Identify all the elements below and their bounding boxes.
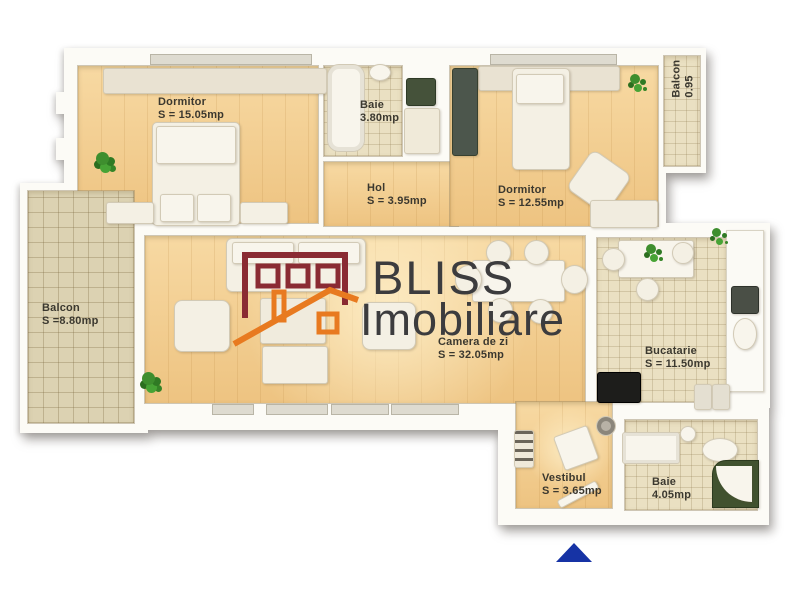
dresser xyxy=(590,200,658,228)
room-area: S = 11.50mp xyxy=(645,358,711,371)
bed-duvet xyxy=(156,126,236,164)
room-name: Dormitor xyxy=(158,96,224,109)
tall-wardrobe xyxy=(452,68,478,156)
room-area: S = 12.55mp xyxy=(498,197,564,210)
room-label-kitchen: Bucatarie S = 11.50mp xyxy=(645,345,711,370)
plant-icon xyxy=(142,372,155,385)
bathroom-counter xyxy=(622,432,680,464)
room-area: S = 3.65mp xyxy=(542,485,602,498)
window-top-2 xyxy=(490,54,617,65)
room-area: 4.05mp xyxy=(652,489,691,502)
pillow xyxy=(516,74,564,104)
window-sill-left-1 xyxy=(56,92,66,114)
nightstand xyxy=(106,202,154,224)
toilet xyxy=(702,438,738,462)
kitchen-chair xyxy=(672,242,694,264)
kitchen-chair xyxy=(602,248,625,271)
room-label-bathroom-2: Baie 4.05mp xyxy=(652,476,691,501)
ceiling-lamp xyxy=(596,416,616,436)
room-name: Baie xyxy=(652,476,691,489)
room-name: Balcon xyxy=(670,60,683,98)
kitchen-appliance xyxy=(731,286,759,314)
room-area: S =8.80mp xyxy=(42,315,99,328)
appliance xyxy=(712,384,730,410)
room-label-vestibule: Vestibul S = 3.65mp xyxy=(542,472,602,497)
toilet xyxy=(369,64,391,81)
room-label-bedroom-1: Dormitor S = 15.05mp xyxy=(158,96,224,121)
window-sill-left-2 xyxy=(56,138,66,160)
floorplan-canvas: Dormitor S = 15.05mp Baie 3.80mp Hol S =… xyxy=(0,0,800,600)
window-living-2 xyxy=(266,404,328,415)
room-name: Vestibul xyxy=(542,472,602,485)
window-living-1 xyxy=(212,404,254,415)
entrance-arrow-icon xyxy=(556,543,592,562)
room-area: 3.80mp xyxy=(360,112,399,125)
kitchen-chair xyxy=(636,278,659,301)
logo-window xyxy=(288,266,308,286)
dining-chair xyxy=(561,265,588,294)
wardrobe xyxy=(103,68,327,94)
closet-shelf xyxy=(406,78,436,106)
tv-stand xyxy=(262,346,328,384)
brand-subtitle: Imobiliare xyxy=(360,294,565,346)
room-area: S = 15.05mp xyxy=(158,109,224,122)
room-name: Baie xyxy=(360,99,399,112)
logo-window xyxy=(258,266,278,286)
plant-icon xyxy=(630,74,640,84)
room-label-balcony-left: Balcon S =8.80mp xyxy=(42,302,99,327)
sink xyxy=(680,426,696,442)
window-living-3 xyxy=(331,404,389,415)
pillow xyxy=(197,194,231,222)
room-label-bathroom-1: Baie 3.80mp xyxy=(360,99,399,124)
room-area: 0.95 xyxy=(683,60,696,98)
room-name: Bucatarie xyxy=(645,345,711,358)
room-area: S = 3.95mp xyxy=(367,195,427,208)
plant-icon xyxy=(646,244,656,254)
stove xyxy=(597,372,641,403)
window-top-1 xyxy=(150,54,312,65)
room-name: Balcon xyxy=(42,302,99,315)
kitchen-sink xyxy=(733,318,757,350)
room-area: S = 32.05mp xyxy=(438,349,508,362)
plant-icon xyxy=(712,228,721,237)
logo-window xyxy=(318,266,338,286)
room-name: Hol xyxy=(367,182,427,195)
appliance xyxy=(694,384,712,410)
window-living-4 xyxy=(391,404,459,415)
armchair xyxy=(174,300,230,352)
apartment-plan: Dormitor S = 15.05mp Baie 3.80mp Hol S =… xyxy=(0,0,800,600)
house-logo-icon xyxy=(230,248,375,348)
plant-icon xyxy=(96,152,109,165)
room-label-bedroom-2: Dormitor S = 12.55mp xyxy=(498,184,564,209)
logo-roof-window xyxy=(319,314,337,332)
room-label-hallway: Hol S = 3.95mp xyxy=(367,182,427,207)
dining-chair xyxy=(524,240,549,265)
shoe-cabinet xyxy=(514,430,534,468)
closet xyxy=(404,108,440,154)
room-name: Dormitor xyxy=(498,184,564,197)
room-label-balcony-right: Balcon 0.95 xyxy=(670,60,695,98)
nightstand xyxy=(240,202,288,224)
pillow xyxy=(160,194,194,222)
